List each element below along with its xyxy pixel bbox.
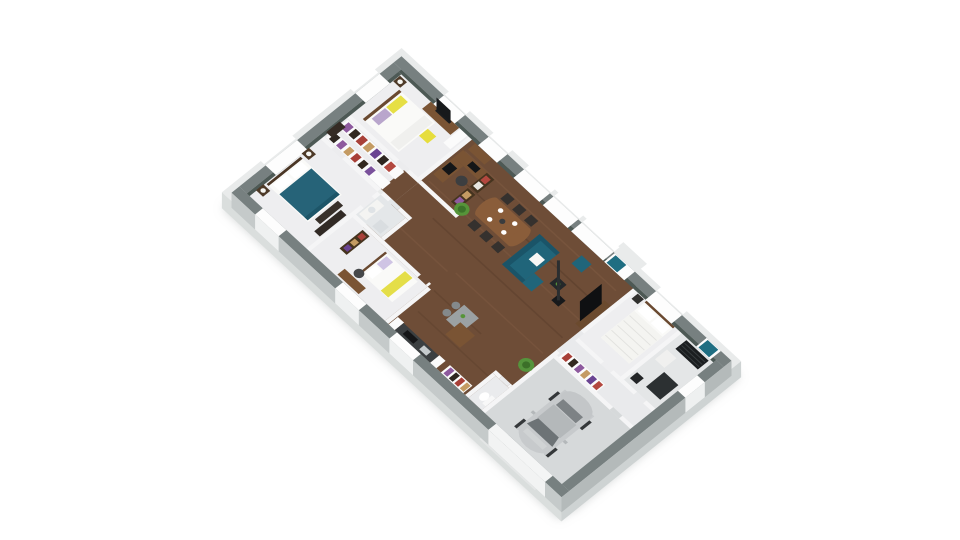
- floor-plan-canvas: [0, 0, 960, 540]
- floor-plan-page: [0, 0, 960, 540]
